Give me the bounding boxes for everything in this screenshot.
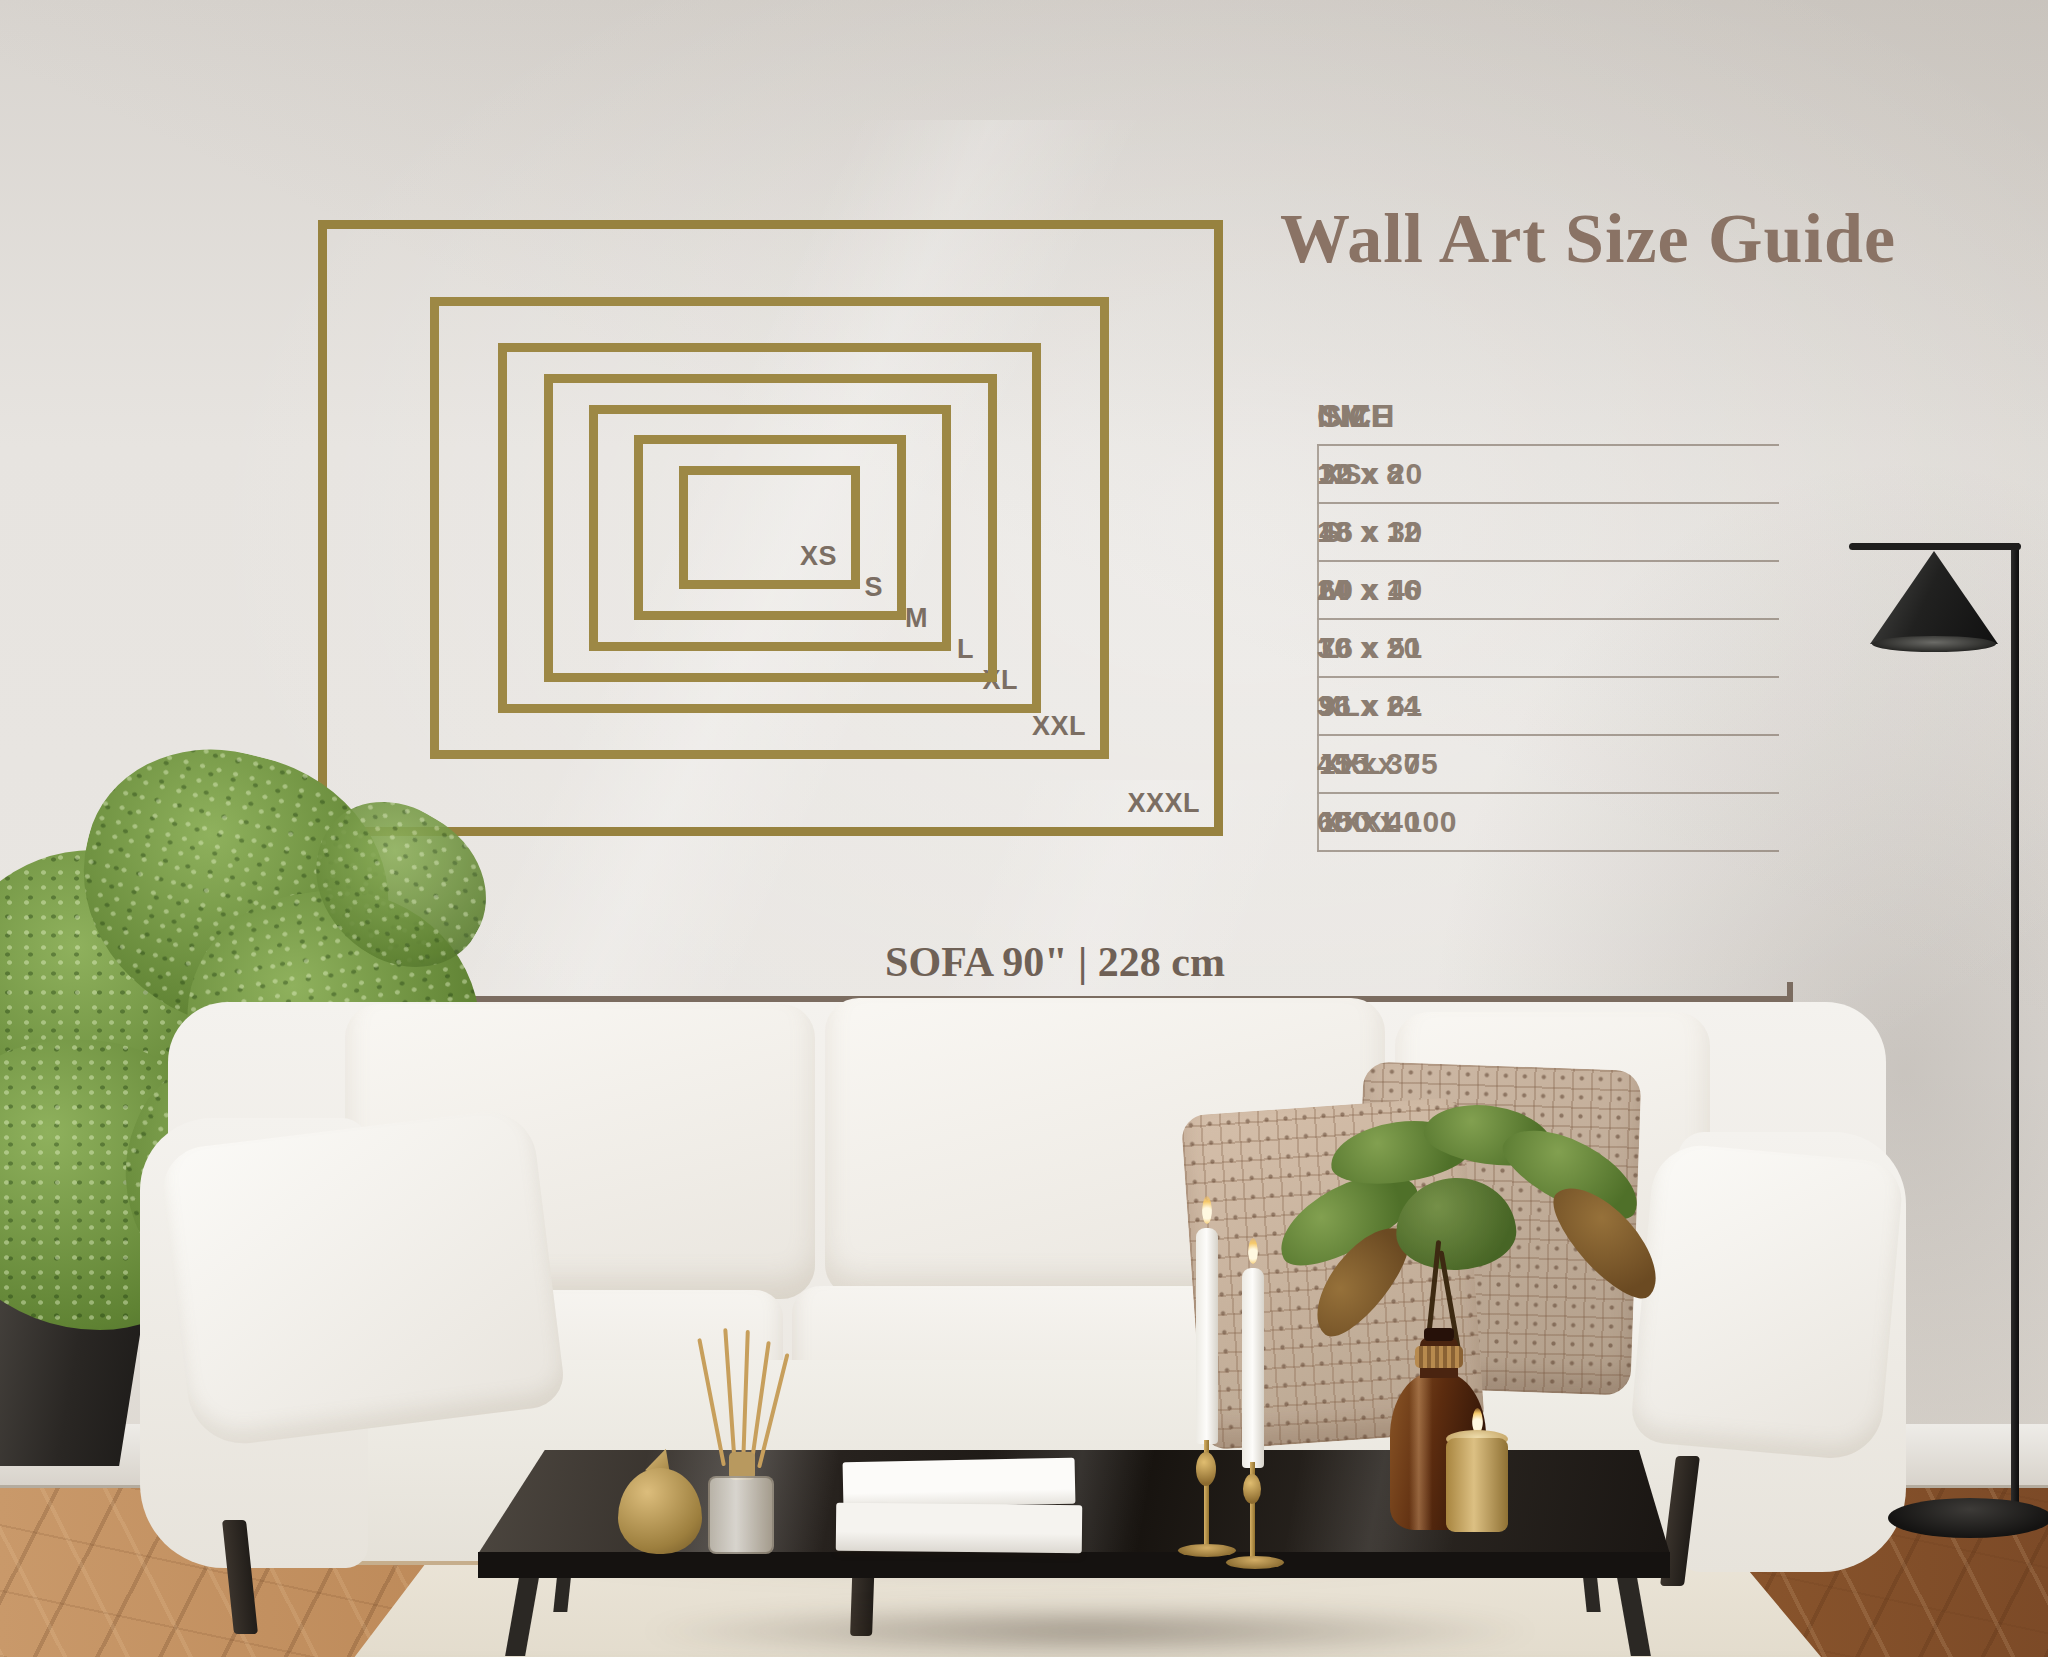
book: [843, 1458, 1076, 1509]
candlestick-ornament: [1196, 1452, 1216, 1486]
diffuser-reed: [697, 1338, 726, 1466]
bottle-cap: [1424, 1328, 1454, 1341]
taper-candle: [1242, 1268, 1264, 1468]
candlestick-ornament: [1243, 1474, 1261, 1504]
candlestick-base: [1178, 1544, 1236, 1557]
wall-art-size-guide-mockup: XXXL XXL XL L M S XS Wall Art Size Guide…: [0, 0, 2048, 1657]
candlestick-base: [1226, 1556, 1284, 1569]
bottle-rope-detail: [1415, 1346, 1463, 1368]
diffuser-reed: [741, 1330, 750, 1468]
table-decor: [0, 0, 2048, 1657]
taper-candle: [1196, 1228, 1218, 1444]
diffuser-jar: [708, 1476, 774, 1554]
diffuser-reed: [749, 1341, 771, 1468]
gold-pillar-candle: [1446, 1438, 1508, 1532]
diffuser-reed: [723, 1328, 737, 1468]
book: [836, 1503, 1082, 1554]
candle-flame: [1248, 1238, 1258, 1264]
gold-bowl: [618, 1468, 702, 1554]
candle-flame: [1202, 1196, 1212, 1224]
